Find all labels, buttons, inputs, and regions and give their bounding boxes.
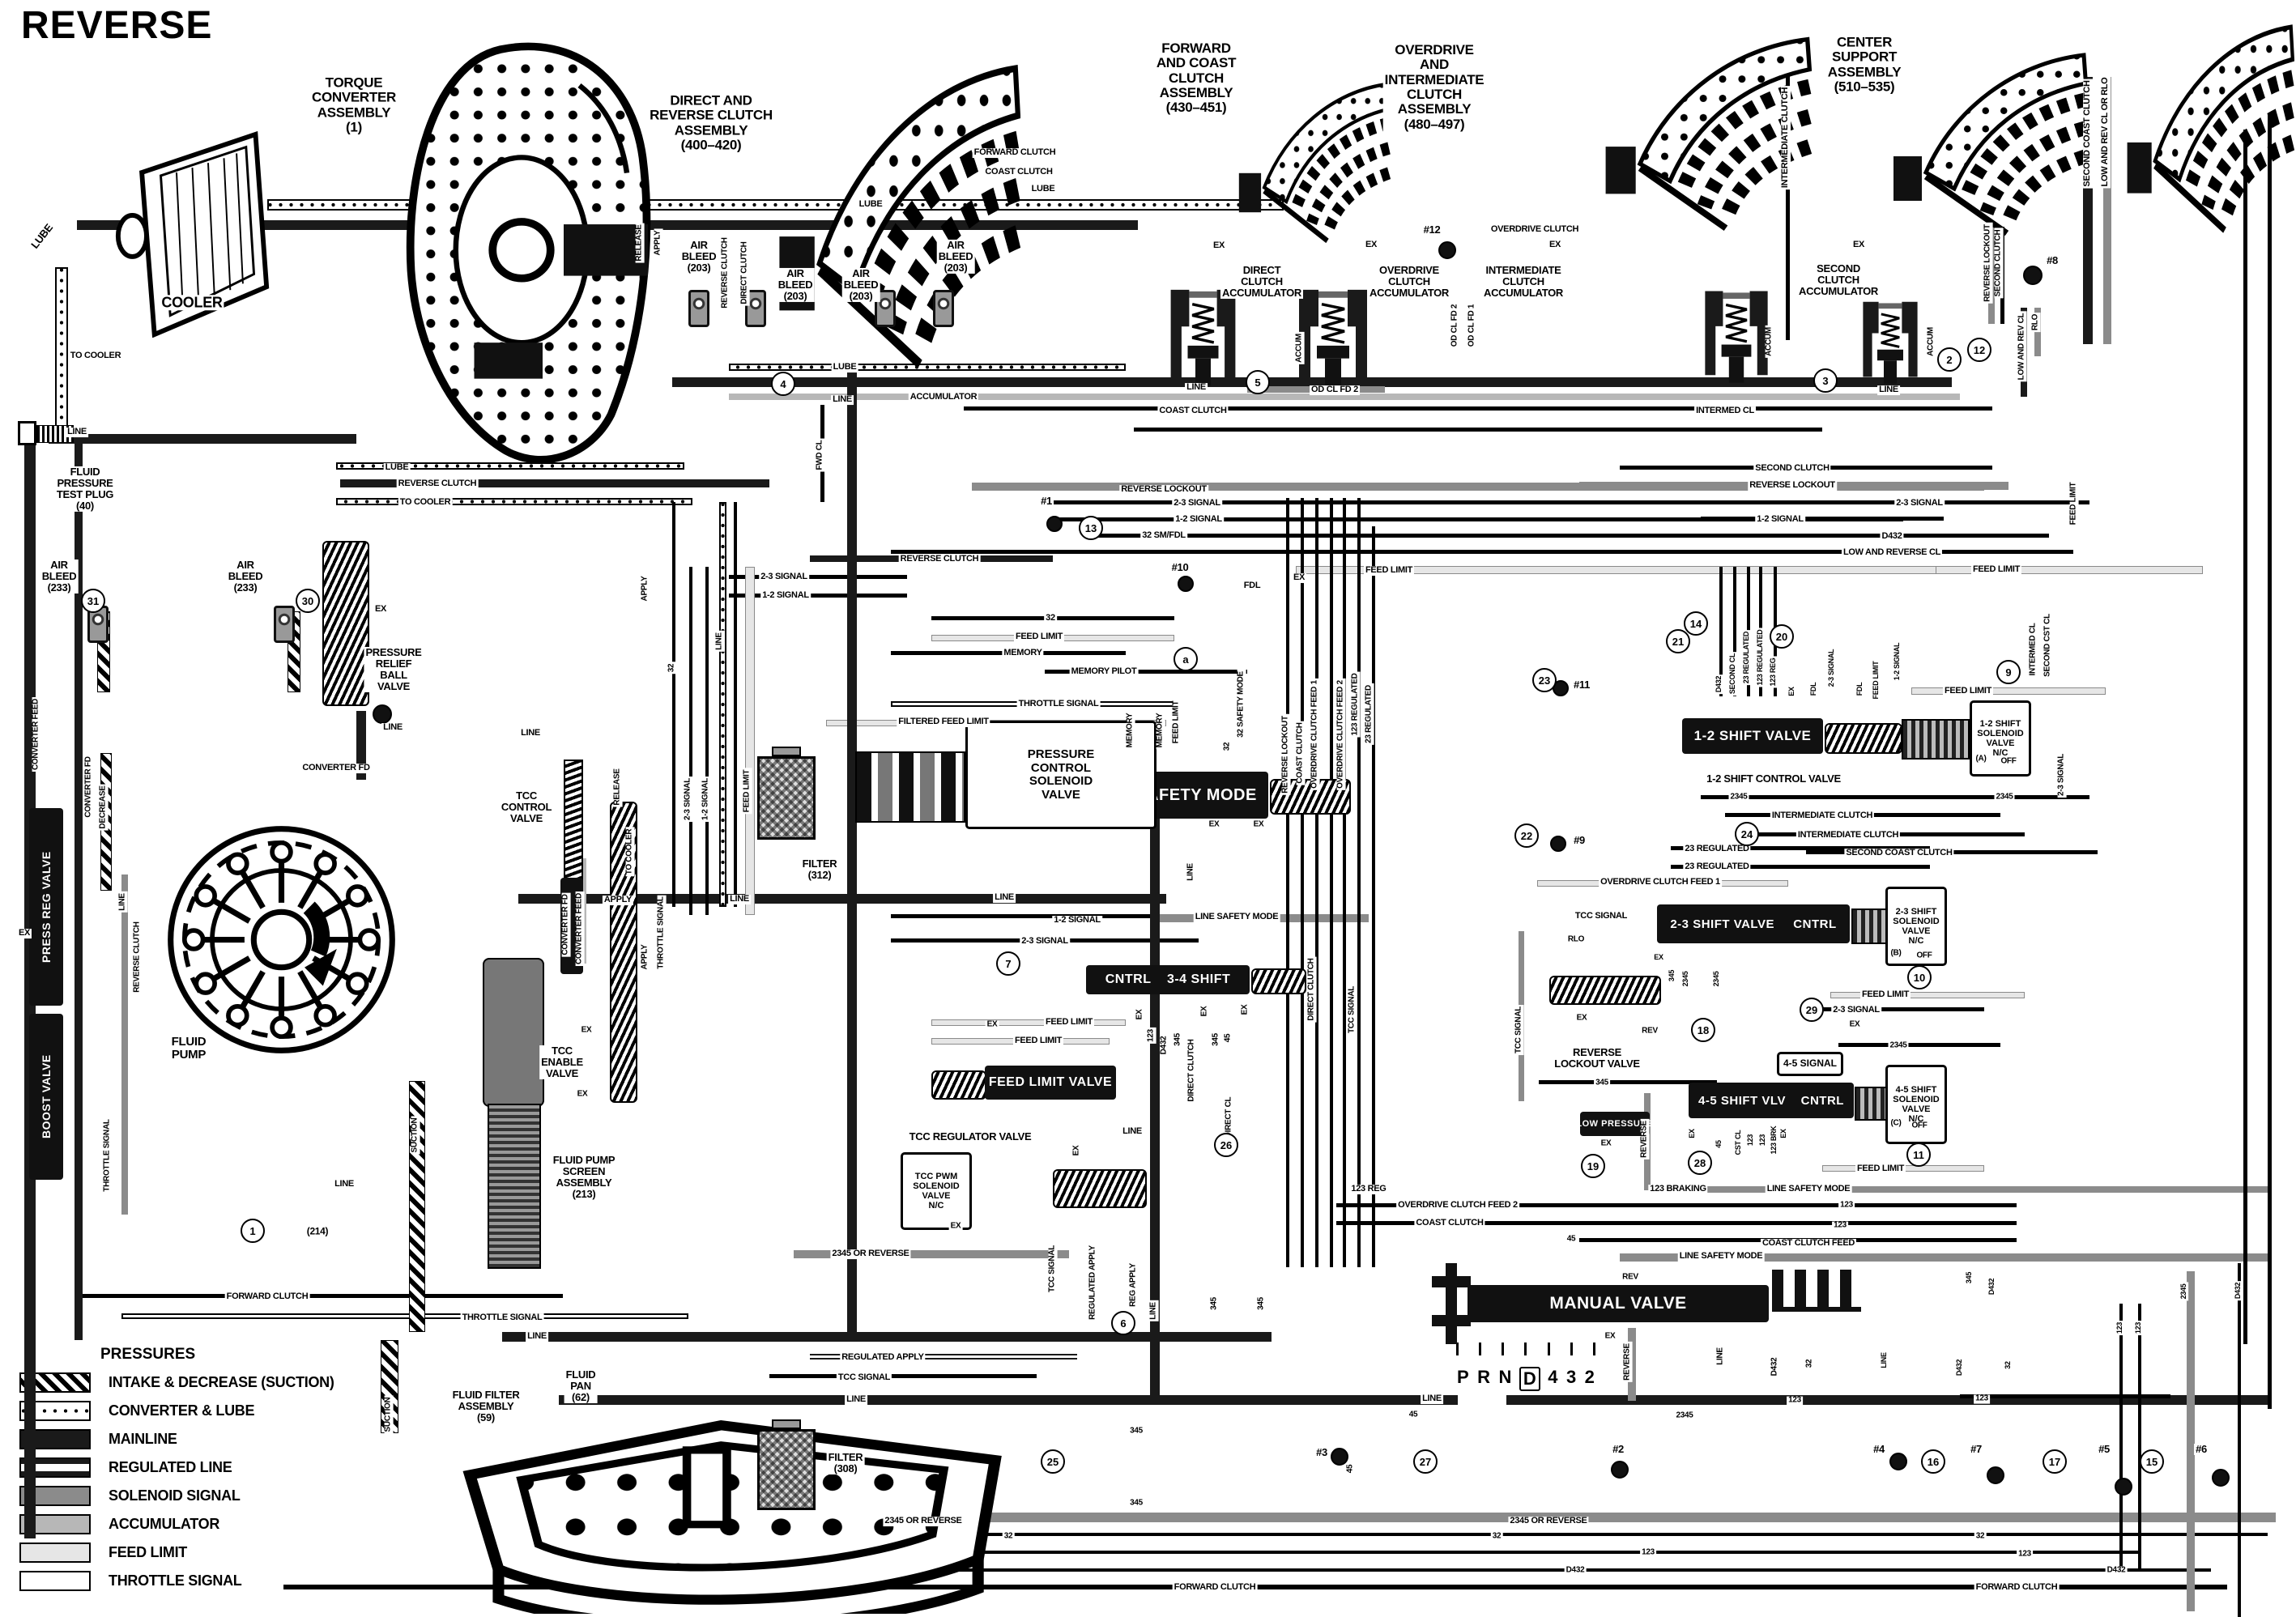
circled-number: 24 [1735, 822, 1759, 846]
line-label: FILTER (308) [827, 1452, 865, 1474]
valve-spring [1053, 1169, 1147, 1208]
flow-line-thin [705, 567, 709, 915]
line-label: FEED LIMIT [1860, 990, 1910, 1000]
flow-line-thin [672, 502, 675, 907]
line-label: EX [949, 1223, 963, 1232]
line-label: INTERMED CL [2030, 621, 2038, 677]
line-label: #10 [1170, 562, 1191, 573]
line-label: 32 [1806, 1358, 1815, 1370]
line-label: COAST CLUTCH [1414, 1219, 1485, 1228]
line-label: FORWARD CLUTCH [1173, 1583, 1258, 1593]
line-label: REVERSE [1624, 1342, 1633, 1382]
line-label: EX [1604, 1333, 1617, 1342]
line-label: D432 [2106, 1567, 2128, 1576]
valve-spring [1251, 968, 1306, 994]
line-label: 32 SM/FDL [1140, 531, 1187, 541]
line-label: 2-3 SIGNAL [1172, 499, 1222, 509]
line-label: INTERMED CL [1694, 406, 1756, 416]
line-label: 45 [1565, 1236, 1578, 1245]
accumulator-graphic [1858, 296, 1923, 392]
line-label: 345 [1966, 1270, 1974, 1285]
line-label: #9 [1572, 835, 1587, 846]
flow-line-fdl [745, 567, 755, 915]
line-label: EX [1548, 240, 1562, 250]
line-label: 2345 [2180, 1283, 2188, 1301]
line-label: FLUID FILTER ASSEMBLY (59) [451, 1389, 522, 1423]
line-label: COAST CLUTCH FEED [1761, 1239, 1856, 1249]
line-label: OVERDRIVE CLUTCH FEED 2 [1396, 1201, 1519, 1211]
line-label: OVERDRIVE CLUTCH FEED 1 [1311, 679, 1320, 790]
line-label: EX [1292, 573, 1306, 583]
line-label: 2-3 SIGNAL [1894, 499, 1945, 509]
line-label: LUBE [28, 221, 57, 253]
line-label: 2345 [1994, 794, 2014, 802]
legend-label: THROTTLE SIGNAL [109, 1572, 242, 1589]
line-label: 2-3 SIGNAL [1828, 648, 1836, 689]
line-label: DIRECT CLUTCH [1308, 956, 1317, 1022]
line-label: THROTTLE SIGNAL [658, 895, 667, 970]
line-label: APPLY [654, 229, 663, 257]
line-label: EX [1575, 1015, 1589, 1023]
line-label: 2345 OR REVERSE [883, 1517, 963, 1526]
line-label: 345 [1211, 1296, 1220, 1312]
line-label: OVERDRIVE CLUTCH FEED 1 [1599, 878, 1722, 887]
line-label: 123 [1640, 1549, 1656, 1558]
line-label: DIRECT CLUTCH [1188, 1037, 1197, 1103]
line-label: 1-2 SIGNAL [760, 591, 811, 601]
circled-number: 5 [1246, 370, 1270, 394]
line-label: D432 [1715, 674, 1723, 694]
line-label: CONVERTER FD [300, 764, 371, 773]
line-label: OVERDRIVE AND INTERMEDIATE CLUTCH ASSEMB… [1383, 43, 1486, 132]
line-label: THROTTLE SIGNAL [461, 1313, 544, 1323]
flow-line-thin [1134, 428, 1822, 432]
line-label: FLUID PUMP SCREEN ASSEMBLY (213) [552, 1155, 616, 1200]
flow-line-thin [1357, 498, 1361, 1267]
valve-spring [322, 541, 369, 706]
line-label: APPLY [641, 943, 650, 972]
flow-line-thin [2238, 1263, 2241, 1617]
line-label: 123 [2135, 1321, 2143, 1335]
line-label: RLO [1566, 936, 1586, 945]
line-label: SECOND COAST CLUTCH [2083, 79, 2093, 188]
accumulator-graphic [1165, 283, 1242, 395]
check-ball [2023, 266, 2043, 285]
line-label: AIR BLEED (203) [777, 268, 815, 302]
check-ball [373, 704, 392, 724]
flow-line-thin [1701, 517, 1944, 521]
line-label: 45 [1715, 1138, 1723, 1149]
line-label: FORWARD CLUTCH [225, 1292, 310, 1302]
solenoid-box: 4-5 SIGNAL [1777, 1052, 1843, 1076]
line-label: EX [1600, 1140, 1613, 1149]
line-label: OVERDRIVE CLUTCH ACCUMULATOR [1368, 265, 1450, 299]
line-label: REVERSE LOCKOUT [1282, 714, 1291, 795]
line-label: TO COOLER [69, 351, 123, 361]
line-label: 123 [1838, 1202, 1855, 1211]
line-label: EX [580, 1027, 594, 1036]
line-label: D432 [1988, 1277, 1996, 1296]
check-ball [1611, 1461, 1629, 1479]
valve-spring [1549, 976, 1661, 1005]
line-label: (214) [305, 1227, 330, 1237]
flow-line-main [49, 434, 356, 444]
line-label: EX [1848, 1021, 1862, 1030]
line-label: LUBE [832, 363, 858, 372]
line-label: REVERSE CLUTCH [899, 555, 981, 564]
flow-line-thin [2119, 1304, 2123, 1571]
line-label: EX [1364, 240, 1378, 250]
air-bleed-fitting [274, 606, 295, 643]
legend-label: FEED LIMIT [109, 1544, 187, 1561]
part-armature [1851, 908, 1890, 944]
flow-line-sol [121, 874, 128, 1215]
legend-item: REGULATED LINE [19, 1453, 473, 1482]
line-label: SECOND CST CL [2044, 612, 2053, 679]
line-label: LINE [1150, 1300, 1159, 1321]
line-label: SUCTION [411, 1117, 420, 1155]
line-label: TCC SIGNAL [1574, 912, 1629, 921]
line-label: (B) [1889, 950, 1903, 959]
part-pcsvalve [855, 751, 965, 823]
line-label: EX [1851, 240, 1866, 250]
line-label: EX [1201, 1005, 1210, 1019]
line-label: 32 [1003, 1533, 1015, 1542]
air-bleed-fitting [688, 290, 709, 327]
line-label: FEED LIMIT [1014, 632, 1064, 642]
line-label: 2345 [1728, 794, 1749, 802]
line-label: SUCTION [385, 1396, 394, 1434]
line-label: TO COOLER [626, 828, 635, 877]
line-label: LINE [845, 1395, 867, 1405]
line-label: 123 [1974, 1395, 1990, 1404]
line-label: 1-2 SIGNAL [1893, 641, 1902, 683]
line-label: 345 [1128, 1500, 1144, 1508]
line-label: 123 [1832, 1222, 1848, 1231]
line-label: D432 [1161, 1035, 1169, 1057]
legend-label: MAINLINE [109, 1431, 177, 1448]
line-label: INTERMEDIATE CLUTCH [1796, 831, 1900, 840]
line-label: REVERSE LOCKOUT [1984, 223, 1993, 304]
line-label: D432 [1956, 1358, 1964, 1377]
line-label: AIR BLEED (203) [937, 240, 975, 274]
legend-label: INTAKE & DECREASE (SUCTION) [109, 1374, 334, 1391]
line-label: 2345 [1674, 1412, 1694, 1421]
valve-bar: 4-5 SHIFT VLV CNTRL [1689, 1083, 1854, 1118]
flow-line-thin [1343, 498, 1346, 1267]
line-label: CST CL [1735, 1129, 1743, 1157]
torque-converter-graphic [395, 34, 658, 471]
line-label: REVERSE [1641, 1119, 1650, 1160]
legend-item: THROTTLE SIGNAL [19, 1567, 473, 1595]
line-label: RELEASE [614, 767, 623, 806]
circled-number: 15 [2140, 1449, 2164, 1474]
circled-number: 12 [1967, 338, 1991, 362]
line-label: OD CL FD 2 [1310, 385, 1360, 395]
circled-number: a [1174, 647, 1198, 671]
legend-swatch-feed-limit [19, 1543, 91, 1563]
line-label: OD CL FD 1 [1468, 303, 1477, 348]
line-label: 32 [2004, 1360, 2013, 1370]
line-label: LINE [119, 891, 128, 913]
line-label: CONVERTER FEED [576, 891, 585, 966]
line-label: 123 [1787, 1397, 1803, 1406]
flow-line-thin [1838, 1043, 2000, 1047]
line-label: COOLER [160, 295, 224, 310]
line-label: REVERSE CLUTCH [397, 479, 479, 489]
line-label: 45 [1225, 1032, 1233, 1045]
line-label: OFF [1910, 1122, 1928, 1131]
flow-line-thin [1701, 795, 2089, 799]
flow-line-thin [729, 594, 907, 598]
line-label: 2345 [1682, 970, 1690, 989]
line-label: 2345 [1713, 970, 1721, 989]
line-label: EX [1788, 685, 1796, 697]
line-label: 45 [1347, 1463, 1356, 1475]
line-label: FLUID PAN (62) [564, 1369, 598, 1403]
line-label: DECREASE [100, 784, 109, 830]
circled-number: 16 [1921, 1449, 1945, 1474]
circled-number: 3 [1813, 368, 1838, 393]
line-label: 32 SAFETY MODE [1237, 670, 1246, 739]
line-label: EX [576, 1091, 590, 1100]
line-label: 2-3 SIGNAL [1831, 1006, 1881, 1015]
flow-line-thin [689, 567, 692, 915]
line-label: COAST CLUTCH [1157, 406, 1228, 416]
line-label: SECOND CL [1729, 652, 1737, 696]
line-label: LINE [526, 1332, 548, 1342]
part-stem [1432, 1263, 1471, 1344]
line-label: AIR BLEED (203) [680, 240, 718, 274]
check-ball [1178, 576, 1194, 592]
circled-number: 22 [1514, 823, 1539, 848]
line-label: LUBE [1030, 185, 1057, 194]
line-label: 1-2 SIGNAL [1174, 515, 1224, 525]
circled-number: 20 [1770, 624, 1794, 649]
line-label: LINE SAFETY MODE [1766, 1185, 1852, 1194]
line-label: LINE [716, 631, 725, 652]
line-label: ACCUM [1766, 326, 1774, 358]
line-label: 123 REGULATED [1757, 628, 1765, 687]
line-label: 32 [1224, 741, 1233, 753]
gear-position-R: R [1476, 1367, 1491, 1391]
line-label: AIR BLEED (233) [227, 560, 265, 594]
circled-number: 2 [1937, 347, 1962, 372]
valve-bar: PRESS REG VALVE [29, 808, 63, 1006]
line-label: FEED LIMIT [1173, 700, 1182, 746]
line-label: 32 [1044, 614, 1057, 623]
flow-line-sol [1652, 1186, 2268, 1193]
circled-number: 28 [1688, 1151, 1712, 1175]
line-label: REG APPLY [1130, 1262, 1139, 1308]
line-label: FDL [1242, 581, 1262, 591]
line-label: #4 [1872, 1444, 1886, 1455]
flow-line-thin [2268, 113, 2272, 1409]
gear-position-D: D [1519, 1367, 1540, 1391]
part-screen [488, 1104, 541, 1269]
legend-label: ACCUMULATOR [109, 1516, 219, 1533]
line-label: #5 [2097, 1444, 2111, 1455]
line-label: LINE [831, 395, 854, 405]
line-label: TCC SIGNAL [837, 1373, 892, 1383]
line-label: #11 [1572, 679, 1591, 691]
gear-position-3: 3 [1565, 1367, 1577, 1391]
line-label: SECOND COAST CLUTCH [1844, 849, 1953, 858]
line-label: #8 [2045, 255, 2060, 266]
flow-line-thin [1286, 498, 1289, 1267]
accumulator-graphic [1699, 285, 1774, 392]
line-label: ACCUM [1928, 326, 1936, 358]
filter-graphic [757, 747, 816, 840]
line-label: EX [1212, 241, 1226, 251]
line-label: 2345 OR REVERSE [1508, 1517, 1588, 1526]
legend-label: CONVERTER & LUBE [109, 1402, 254, 1419]
line-label: 2345 OR REVERSE [830, 1249, 910, 1259]
flow-line-thin [2138, 1304, 2141, 1571]
line-label: 345 [1212, 1032, 1221, 1048]
line-label: 123 REG [1770, 657, 1778, 688]
line-label: CONVERTER FEED [32, 697, 41, 772]
gear-position-2: 2 [1584, 1367, 1595, 1391]
line-label: FORWARD CLUTCH [1974, 1583, 2060, 1593]
clutch-assembly-graphic [1233, 77, 1391, 255]
line-label: 2345 [1888, 1042, 1908, 1051]
line-label: 2-3 SIGNAL [759, 572, 809, 582]
line-label: 23 REGULATED [1683, 845, 1750, 854]
line-label: 123 [1747, 1133, 1755, 1147]
line-label: D432 [1565, 1567, 1587, 1576]
circled-number: 7 [996, 951, 1020, 976]
flow-line-main [847, 372, 857, 1336]
line-label: 123 BRK [1770, 1125, 1778, 1156]
line-label: LINE [993, 893, 1016, 903]
line-label: TCC CONTROL VALVE [500, 790, 553, 824]
flow-line-fdl [931, 1019, 1126, 1026]
line-label: 1-2 SIGNAL [702, 777, 711, 822]
line-label: 45 [1408, 1411, 1420, 1420]
circled-number: 10 [1907, 965, 1932, 989]
flow-line-sol [2187, 1271, 2195, 1611]
flow-line-thin [964, 406, 1992, 411]
line-label: #3 [1314, 1447, 1329, 1458]
flow-line-thin [1372, 526, 1375, 1267]
legend-title: PRESSURES [100, 1346, 473, 1364]
line-label: OFF [1999, 758, 2017, 767]
legend-item: INTAKE & DECREASE (SUCTION) [19, 1368, 473, 1397]
fluid-pan-graphic [447, 1415, 1018, 1614]
line-label: 2-3 SIGNAL [1020, 937, 1070, 947]
check-ball [1046, 516, 1063, 532]
line-label: 1-2 SHIFT CONTROL VALVE [1705, 773, 1842, 785]
legend-label: SOLENOID SIGNAL [109, 1487, 241, 1504]
line-label: CENTER SUPPORT ASSEMBLY (510–535) [1826, 35, 1903, 94]
gear-position-P: P [1456, 1367, 1470, 1391]
line-label: OFF [1915, 952, 1933, 961]
line-label: FEED LIMIT [1872, 660, 1881, 701]
line-label: DIRECT CLUTCH ACCUMULATOR [1220, 265, 1303, 299]
part-armature [1902, 719, 1970, 760]
line-label: LINE [1717, 1346, 1726, 1367]
line-label: FEED LIMIT [1364, 566, 1414, 576]
line-label: EX [1208, 821, 1221, 830]
line-label: #6 [2194, 1444, 2209, 1455]
flow-line-thin [729, 575, 907, 579]
line-label: 345 [1174, 1032, 1183, 1048]
line-label: EX [1136, 1008, 1145, 1022]
line-label: (C) [1889, 1120, 1903, 1129]
line-label: 1-2 SIGNAL [1755, 515, 1805, 525]
line-label: LOW AND REV CL [2018, 312, 2027, 382]
air-bleed-fitting [933, 290, 954, 327]
line-label: 23 REGULATED [1683, 862, 1750, 872]
line-label: ACCUMULATOR [909, 393, 978, 402]
line-label: (A) [1974, 755, 1988, 764]
check-ball [2115, 1478, 2132, 1496]
check-ball [2212, 1469, 2230, 1487]
line-label: AIR BLEED (203) [842, 268, 880, 302]
line-label: THROTTLE SIGNAL [1017, 700, 1101, 709]
legend-item: MAINLINE [19, 1425, 473, 1453]
line-label: LINE [728, 895, 751, 904]
line-label: EX [986, 1021, 999, 1030]
line-label: FEED LIMIT [1943, 687, 1993, 696]
line-label: LOW AND REV CL OR RLO [2101, 76, 2111, 189]
flow-line-fdl [1911, 687, 2106, 695]
circled-number: 23 [1532, 668, 1557, 692]
line-label: EX [17, 929, 32, 938]
circled-number: 25 [1041, 1449, 1065, 1474]
line-label: REVERSE LOCKOUT VALVE [1553, 1047, 1641, 1070]
flow-line-main [559, 1395, 1458, 1405]
line-label: LINE SAFETY MODE [1194, 913, 1280, 922]
check-ball [1550, 836, 1566, 852]
line-label: LINE [1877, 385, 1900, 395]
circled-number: 19 [1581, 1154, 1605, 1178]
valve-bar: 1-2 SHIFT VALVE [1682, 718, 1823, 754]
clutch-assembly-graphic [769, 55, 1020, 391]
line-label: FORWARD AND COAST CLUTCH ASSEMBLY (430–4… [1155, 41, 1237, 116]
line-label: 123 [2017, 1551, 2033, 1560]
line-label: ACCUM [1296, 332, 1305, 364]
line-label: EX [1073, 1144, 1082, 1158]
line-label: EX [1780, 1127, 1788, 1139]
line-label: LINE [333, 1180, 356, 1189]
valve-bar: MANUAL VALVE [1467, 1285, 1769, 1322]
line-label: LINE [1185, 383, 1208, 393]
line-label: 345 [1668, 968, 1676, 983]
line-label: 345 [1594, 1079, 1610, 1088]
flow-line-thin [734, 502, 737, 907]
valve-bar: CNTRL 3-4 SHIFT [1086, 965, 1250, 994]
line-label: 32 [1974, 1533, 1987, 1542]
flow-line-lube [336, 498, 692, 505]
line-label: LINE [1187, 862, 1196, 883]
flow-line-thin [1315, 498, 1318, 1267]
line-label: D432 [2234, 1281, 2243, 1300]
line-label: FEED LIMIT [1855, 1164, 1906, 1174]
line-label: TCC REGULATOR VALVE [908, 1131, 1033, 1143]
line-label: FEED LIMIT [1044, 1018, 1094, 1028]
check-ball [1438, 241, 1456, 259]
line-label: EX [373, 605, 388, 615]
line-label: LINE [519, 729, 542, 738]
solenoid-box: TCC PWM SOLENOID VALVE N/C [901, 1152, 972, 1230]
filter-graphic [757, 1419, 816, 1510]
circled-number: 21 [1666, 629, 1690, 653]
clutch-assembly-graphic [1885, 47, 2088, 249]
circled-number: 26 [1214, 1133, 1238, 1157]
circled-number: 30 [296, 589, 320, 613]
